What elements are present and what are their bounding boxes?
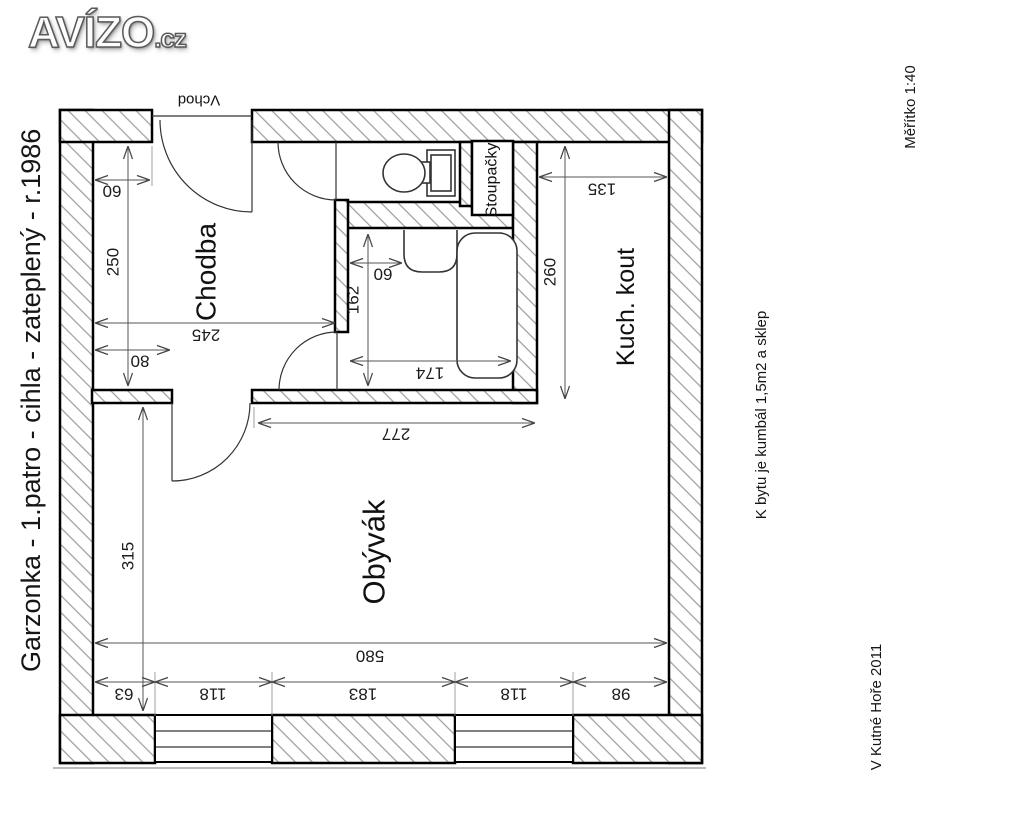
wall-top-right <box>252 110 702 142</box>
floorplan-page: 60 250 245 80 162 60 174 135 260 277 315… <box>0 0 1024 819</box>
washbasin <box>404 230 457 272</box>
note-label: K bytu je kumbál 1,5m2 a sklep <box>751 305 773 525</box>
scale-label: Měřítko 1:40 <box>900 52 922 162</box>
kitchen-label: Kuch. kout <box>612 248 640 366</box>
avizo-logo: AVÍZO.cz <box>28 8 186 58</box>
wall-top-left <box>60 110 152 142</box>
dim-label: 135 <box>588 180 616 199</box>
dim-label: 80 <box>131 352 150 371</box>
place-year-label: V Kutné Hoře 2011 <box>866 627 888 787</box>
dim-label: 250 <box>104 248 123 276</box>
window-right <box>455 715 573 762</box>
dim-label: 183 <box>349 685 377 704</box>
dim-label: 174 <box>416 364 444 383</box>
dim-label: 315 <box>119 542 138 570</box>
logo-brand: AVÍZO <box>28 8 154 57</box>
dim-label: 60 <box>103 182 122 201</box>
living-label: Obývák <box>357 499 392 605</box>
wall-hall-living-left <box>92 390 172 403</box>
dimension-labels: 60 250 245 80 162 60 174 135 260 277 315… <box>103 180 631 704</box>
dim-label: 580 <box>356 647 384 666</box>
window-left <box>155 715 272 762</box>
dim-label: 162 <box>344 286 363 314</box>
dim-label: 260 <box>541 258 560 286</box>
logo-tld: .cz <box>154 23 186 53</box>
dim-label: 98 <box>612 685 631 704</box>
wall-bath-living <box>252 390 537 403</box>
dim-label: 60 <box>374 265 393 284</box>
dim-label: 118 <box>199 685 226 704</box>
bathtub <box>457 233 517 378</box>
dim-label: 63 <box>115 685 134 704</box>
wall-bottom-1 <box>60 715 155 763</box>
bathroom-door <box>279 332 337 390</box>
wall-bottom-3 <box>573 715 702 763</box>
living-room-door <box>172 403 250 481</box>
entrance-door <box>152 116 252 212</box>
wall-bottom-2 <box>272 715 455 763</box>
entrance-label: Vchod <box>178 92 221 109</box>
wall-right <box>669 110 702 763</box>
toilet <box>383 150 455 196</box>
risers-label: Stoupačky <box>484 143 501 218</box>
dim-label: 277 <box>382 425 410 444</box>
left-title: Garzonka - 1.patro - cihla - zateplený -… <box>15 172 47 672</box>
hall-label: Chodba <box>191 223 222 322</box>
wc-door <box>278 142 336 200</box>
dim-label: 118 <box>500 685 527 704</box>
wall-left <box>60 110 93 763</box>
wall-wc-risers <box>460 142 472 206</box>
dimension-lines <box>95 146 667 711</box>
dim-label: 245 <box>192 326 220 345</box>
